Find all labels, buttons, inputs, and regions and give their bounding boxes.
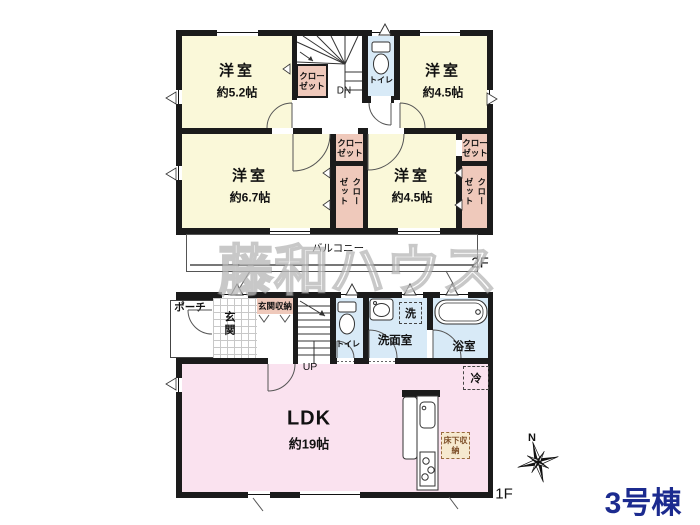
room-name: 洋室	[394, 165, 430, 186]
f2-room-nw-label: 洋室 約5.2帖	[217, 60, 258, 101]
room-size: 約19帖	[289, 434, 329, 453]
f1-toilet-label: トイレ	[336, 339, 360, 350]
f1-floor-label: 1F	[495, 486, 513, 503]
f1-entrance-label: 玄関	[221, 311, 237, 337]
f2-room-ne-label: 洋室 約4.5帖	[423, 60, 464, 101]
f1-up-label: UP	[303, 361, 318, 373]
f2-closet-right-bottom-label: クローゼット	[462, 178, 488, 217]
f2-door-gap-sw	[272, 128, 293, 134]
f1-bathroom-door-gap	[427, 330, 433, 358]
f2-closet-mid-opening	[322, 128, 358, 134]
f2-closet-mid-top-label: クローゼット	[335, 138, 365, 158]
f2-toilet-door-gap	[371, 96, 391, 103]
f2-door-gap-ne	[394, 100, 400, 128]
room-size: 約6.7帖	[230, 189, 271, 206]
f2-room-sw-label: 洋室 約6.7帖	[230, 165, 271, 206]
f1-ldk-door-gap	[268, 358, 293, 364]
room-size: 約4.5帖	[392, 189, 433, 206]
f2-door-gap-se	[368, 128, 404, 134]
washer-label: 洗	[405, 305, 416, 321]
room-name: 洋室	[425, 60, 461, 81]
f2-window-left-sw	[176, 166, 182, 180]
f1-porch-label: ポーチ	[174, 300, 206, 315]
f2-room-se-label: 洋室 約4.5帖	[392, 165, 433, 206]
f2-window-toilet	[372, 30, 390, 36]
f1-washroom-label: 洗面室	[378, 332, 413, 348]
room-name: LDK	[287, 408, 331, 431]
f1-window-bottom-small	[248, 491, 270, 498]
f1-ldk-area	[182, 364, 488, 492]
kitchen-wall-stub	[402, 390, 440, 397]
room-name: 洋室	[232, 165, 268, 186]
f1-ldk-label: LDK 約19帖	[287, 408, 331, 453]
f2-window-right-ne	[487, 90, 493, 104]
fridge-box: 冷	[463, 366, 489, 390]
f2-dn-label: DN	[337, 86, 351, 97]
f2-window-top-ne	[420, 30, 460, 36]
f2-toilet-area	[368, 36, 394, 96]
underfloor-storage-box: 床下収納	[441, 432, 470, 459]
f2-closet-right-top-label: クローゼット	[460, 138, 490, 158]
f2-hall-right	[368, 103, 394, 128]
building-number-label: 3号棟	[605, 478, 682, 522]
f2-toilet-label: トイレ	[369, 75, 393, 86]
f1-washroom-door-gap	[369, 358, 395, 364]
f2-closet-mid-bottom-label: クローゼット	[337, 178, 363, 217]
f2-stair-closet-label: クローゼット	[297, 71, 327, 91]
f2-window-top-nw	[217, 30, 258, 36]
room-name: 洋室	[219, 60, 255, 81]
f2-door-gap-nw	[292, 100, 297, 128]
floor-plan-page: 洗 冷 床下収納	[0, 0, 700, 525]
f1-stair-area	[298, 298, 330, 364]
f1-window-left-ldk	[176, 378, 182, 392]
watermark: 藤和ハウス	[218, 226, 498, 306]
fridge-label: 冷	[471, 370, 482, 386]
f1-bathroom-label: 浴室	[453, 338, 476, 354]
f1-hall-area	[257, 314, 293, 358]
f1-window-bottom-large	[300, 491, 360, 498]
room-size: 約5.2帖	[217, 84, 258, 101]
compass-icon	[512, 436, 563, 487]
f1-toilet-door-gap	[337, 358, 354, 364]
compass-north-label: N	[528, 432, 536, 444]
room-size: 約4.5帖	[423, 84, 464, 101]
f2-window-left-nw	[176, 90, 182, 104]
underfloor-storage-label: 床下収納	[442, 436, 469, 455]
